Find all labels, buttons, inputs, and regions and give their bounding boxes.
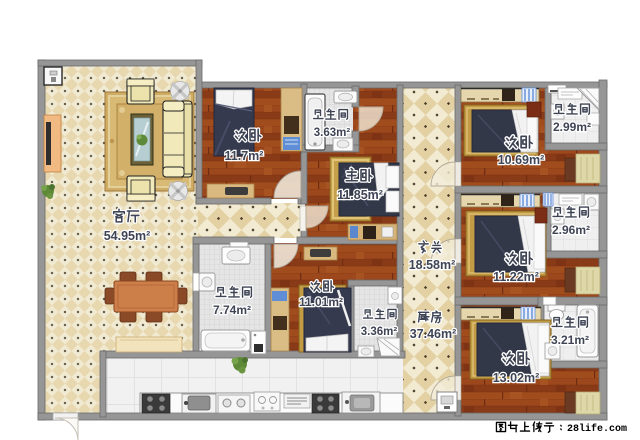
svg-text:13.02m²: 13.02m² xyxy=(493,371,540,385)
svg-text:11.01m²: 11.01m² xyxy=(299,295,343,309)
svg-text:3.36m²: 3.36m² xyxy=(361,326,398,338)
svg-text:7.74m²: 7.74m² xyxy=(213,303,251,317)
svg-text:3.21m²: 3.21m² xyxy=(551,333,589,347)
svg-text:54.95m²: 54.95m² xyxy=(104,229,151,243)
svg-text:11.22m²: 11.22m² xyxy=(493,270,539,284)
svg-text:18.58m²: 18.58m² xyxy=(409,258,456,272)
svg-text:2.96m²: 2.96m² xyxy=(552,223,590,237)
svg-text:10.69m²: 10.69m² xyxy=(498,153,545,167)
svg-text:28life.com: 28life.com xyxy=(567,423,627,435)
svg-text:3.63m²: 3.63m² xyxy=(314,127,351,139)
svg-text:2.99m²: 2.99m² xyxy=(553,120,591,134)
svg-text:37.46m²: 37.46m² xyxy=(410,327,457,341)
svg-text:11.85m²: 11.85m² xyxy=(337,188,383,202)
svg-text:11.7m²: 11.7m² xyxy=(225,149,264,163)
